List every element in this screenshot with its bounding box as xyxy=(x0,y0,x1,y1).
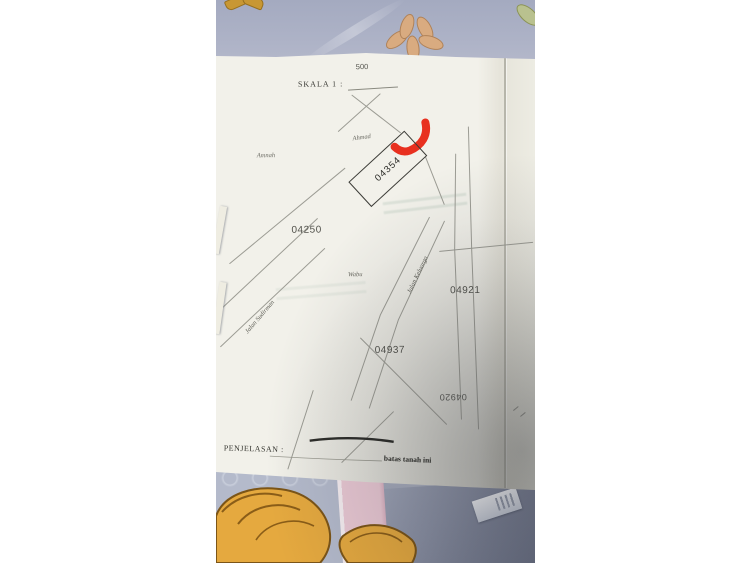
faint-marks xyxy=(513,406,525,416)
leaf-icon xyxy=(513,0,535,29)
footer-thick-line xyxy=(310,438,394,443)
footer-line xyxy=(270,455,382,462)
label-04920-upside-down: 04920 xyxy=(439,392,467,402)
screenshot-canvas: 500 SKALA 1 : xyxy=(0,0,750,563)
footer-label: PENJELASAN : xyxy=(224,444,284,454)
label-04921: 04921 xyxy=(450,285,480,296)
label-04250: 04250 xyxy=(291,225,321,236)
footer-note: batas tanah ini xyxy=(384,454,432,465)
label-wabu: Wabu xyxy=(348,271,363,278)
label-04937: 04937 xyxy=(375,345,405,356)
hair-swirl-right xyxy=(340,525,416,563)
bow-icon xyxy=(241,0,266,11)
plot-04354-label: 04354 xyxy=(373,154,404,183)
photo-of-document: 500 SKALA 1 : xyxy=(216,0,535,563)
label-amnah: Amnah xyxy=(257,152,275,159)
